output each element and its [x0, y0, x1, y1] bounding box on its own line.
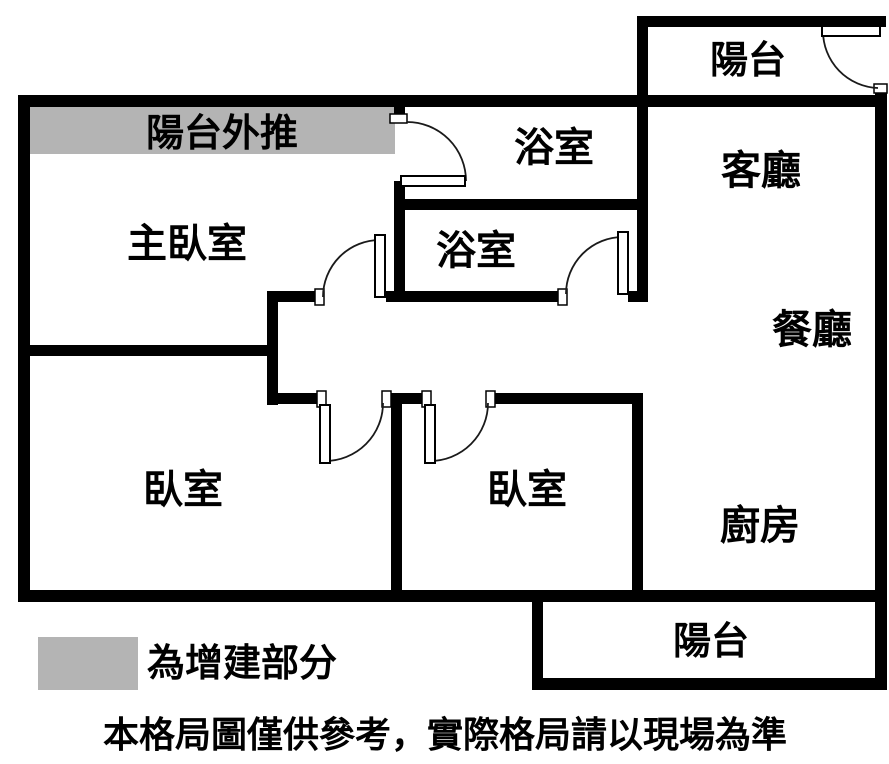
room-label-kitchen: 廚房 [720, 503, 800, 548]
door-master-bedroom [323, 235, 385, 297]
wall-balcony-top-west [637, 16, 648, 106]
legend: 為增建部分 [38, 637, 337, 690]
door-balcony-entry [822, 26, 880, 88]
door-leaf [425, 405, 435, 463]
wall-bottom-main [18, 590, 886, 602]
room-label-balcony-extension: 陽台外推 [146, 113, 298, 155]
room-label-dining-room: 餐廳 [772, 307, 852, 352]
room-label-master-bedroom: 主臥室 [127, 222, 247, 266]
door-swing-arc [323, 240, 380, 297]
wall-bedroom-partition [391, 393, 402, 602]
wall-top-main [18, 95, 886, 107]
wall-master-south [18, 345, 278, 356]
wall-hallway-top-mid [386, 291, 563, 302]
room-label-bathroom-lower: 浴室 [436, 229, 516, 273]
door-leaf [401, 176, 465, 186]
legend-swatch [38, 637, 138, 690]
room-label-bedroom-left: 臥室 [143, 468, 223, 512]
door-bathroom-lower [566, 232, 628, 294]
wall-hallway-top-right [628, 291, 648, 302]
wall-hallway-bottom-right [488, 393, 643, 404]
door-swing-arc [430, 403, 488, 461]
room-label-bathroom-upper: 浴室 [514, 126, 594, 170]
wall-balcony-bottom-south [532, 678, 886, 690]
door-swing-arc [407, 122, 466, 181]
room-label-balcony-bottom: 陽台 [673, 621, 749, 663]
door-bathroom-upper [401, 122, 466, 186]
wall-hallway-bottom-left [267, 393, 318, 404]
door-leaf [375, 235, 385, 297]
disclaimer-text: 本格局圖僅供參考，實際格局請以現場為準 [103, 714, 787, 755]
wall-bedroom-kitchen [632, 393, 643, 602]
door-leaf [320, 405, 330, 463]
floor-plan-drawing: 陽台 陽台外推 浴室 客廳 主臥室 浴室 餐廳 臥室 臥室 廚房 陽台 為增建部… [0, 0, 889, 764]
wall-living-west [637, 95, 648, 302]
door-swing-arc [325, 403, 383, 461]
wall-between-bathrooms [394, 199, 648, 210]
room-label-living-room: 客廳 [721, 148, 801, 193]
jamb-bathroom-upper [390, 114, 407, 123]
wall-balcony-bottom-west [532, 590, 543, 690]
room-label-balcony-top: 陽台 [710, 40, 786, 82]
floor-plan-page: 陽台 陽台外推 浴室 客廳 主臥室 浴室 餐廳 臥室 臥室 廚房 陽台 為增建部… [0, 0, 889, 764]
door-leaf [618, 232, 628, 294]
wall-right-outer [875, 88, 887, 690]
door-bedroom-left [320, 403, 383, 463]
room-label-bedroom-middle: 臥室 [487, 468, 567, 512]
door-swing-arc [823, 31, 878, 88]
door-bedroom-middle [425, 403, 488, 463]
door-leaf [822, 26, 880, 36]
door-swing-arc [566, 237, 623, 294]
legend-label: 為增建部分 [147, 643, 337, 685]
